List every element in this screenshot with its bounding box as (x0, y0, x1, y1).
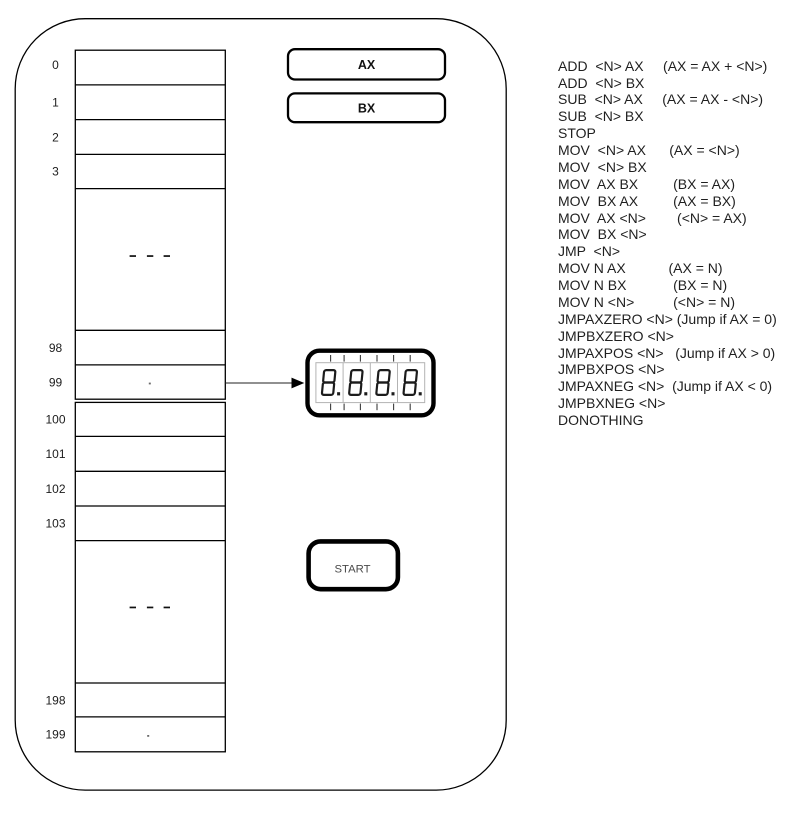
svg-text:1: 1 (52, 96, 59, 110)
svg-text:BX: BX (358, 101, 376, 115)
svg-text:102: 102 (45, 482, 65, 496)
svg-text:100: 100 (45, 413, 65, 427)
svg-text:START: START (335, 563, 371, 575)
svg-text:3: 3 (52, 165, 59, 179)
svg-text:99: 99 (49, 375, 63, 389)
svg-text:2: 2 (52, 130, 59, 144)
svg-text:0: 0 (52, 58, 59, 72)
svg-text:101: 101 (45, 447, 65, 461)
svg-text:199: 199 (45, 728, 65, 742)
svg-text:AX: AX (358, 58, 376, 72)
svg-text:198: 198 (45, 693, 65, 707)
svg-text:98: 98 (49, 341, 63, 355)
svg-text:103: 103 (45, 517, 65, 531)
